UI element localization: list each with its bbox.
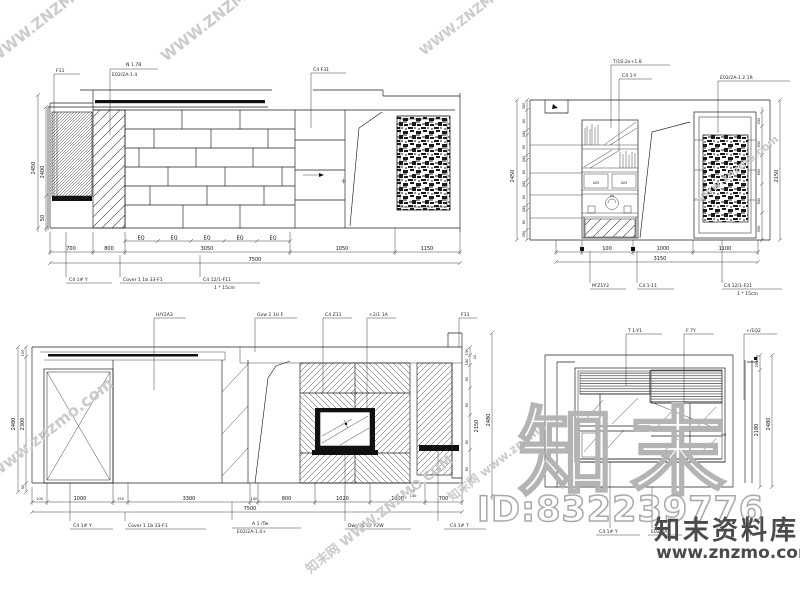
dim-label: 60 (465, 402, 469, 407)
callout-label: C4 1-11 (639, 283, 657, 289)
dim-label: 1000 (74, 496, 87, 502)
hook-marker (754, 357, 757, 360)
curtain-box-bar (48, 354, 198, 357)
callout-label: T/1S-2x+1.8 (612, 59, 642, 65)
dim-label: 3050 (201, 246, 214, 252)
dim-label: 60 (522, 144, 526, 149)
dim-label: 60 (522, 169, 526, 174)
dim-label: 340 (522, 155, 526, 163)
watermark-diagonal: WWW.ZNZMO.COM (157, 0, 294, 65)
dim-label: 140 (251, 497, 259, 501)
direction-arrow (303, 175, 346, 184)
staggered-brick-wall (125, 110, 295, 228)
dim-total-label: 2480 (486, 414, 492, 427)
drawing-bottom-left-elevation: 100 2300 50 2480 150 10 140 60 60 2150 6… (11, 312, 494, 535)
callout-label: T 1-Y1 (627, 328, 642, 334)
left-hatched-panel (52, 112, 92, 196)
dim-label: 60 (522, 118, 526, 123)
dim-label: 255 (755, 361, 759, 368)
mirror-slashes (222, 364, 248, 476)
decor-detail (608, 195, 616, 203)
dim-total-label: 2150 (774, 170, 780, 183)
dim-label: 550 (757, 197, 761, 205)
cell-dim: 425 (593, 181, 600, 185)
dim-label: 60 (522, 219, 526, 224)
dim-label: 60 (465, 376, 469, 381)
carved-art-panel (397, 116, 450, 210)
dim-label: 1020 (336, 496, 349, 502)
curtain-profile (350, 112, 382, 226)
dim-label: 700 (66, 246, 76, 252)
cad-canvas: EQ EQ EQ EQ EQ 700 800 3050 1050 1150 75… (0, 0, 800, 600)
watermark-diagonal: WWW.ZNZMO.COM (0, 0, 123, 67)
wall-shelf-lines (530, 145, 582, 218)
callout-label: Cover 1 1b 33-F1 (123, 277, 163, 283)
dim-label: 350 (522, 230, 526, 238)
callout-label: 1 * 15cm (737, 291, 759, 297)
dim-total-label: 3150 (654, 256, 667, 262)
callout-label: H/Y2A3 (156, 312, 173, 318)
dim-label: 3300 (183, 496, 196, 502)
dim-label: 1100 (719, 246, 732, 252)
dim-label: 2180 (754, 424, 760, 437)
section-marker (631, 247, 635, 251)
callout-label: F11 (461, 312, 470, 318)
watermark-diagonal: www.znzmo.com (0, 374, 117, 482)
dim-total-label: 7500 (249, 257, 262, 263)
panel-base-strip (419, 445, 459, 451)
watermark-brand-name: 知末资料库 (654, 516, 799, 546)
callout-label: C4 1# 7 (450, 523, 469, 529)
watermark-site-url: www.znzmo.com (656, 543, 800, 563)
section-marker (580, 247, 584, 251)
eq-label: EQ (269, 236, 276, 242)
callout-leaders-bottom (590, 240, 782, 289)
dim-label: 1000 (657, 246, 670, 252)
curtain-box-bar (95, 100, 265, 103)
dim-label: 60 (465, 466, 469, 471)
diagonal-panel (93, 110, 125, 228)
curtain-profile (640, 122, 690, 238)
ceiling-mark (552, 104, 558, 109)
dim-label: 2400 (40, 166, 46, 179)
right-step (452, 363, 462, 478)
left-panel-base (52, 196, 92, 201)
dim-label: 340 (522, 180, 526, 188)
dim-label: 150 (465, 348, 469, 356)
eq-label: EQ (236, 236, 243, 242)
callout-label: C4 12/1-F11 (203, 277, 231, 283)
callout-label: M'Z1Y2 (592, 283, 609, 289)
dim-label: 10 (473, 354, 477, 359)
eq-label: EQ (170, 236, 177, 242)
dim-total-label: 7500 (244, 506, 257, 512)
dim-label: 140 (465, 358, 469, 366)
dim-label: 340 (522, 130, 526, 138)
dim-label: 2300 (20, 418, 26, 431)
dim-label: 2150 (474, 420, 480, 433)
decor-object (606, 197, 619, 210)
callout-label: A 1 /Tw (252, 521, 269, 527)
arrow-head (319, 173, 324, 177)
callout-label: F 7Y (686, 328, 696, 334)
feature-wall-hatch (300, 453, 355, 483)
callout-label: E02/2A-1.4+ (237, 529, 266, 535)
callout-label: +2/1 1A (369, 312, 389, 318)
callout-label: Gvw 1 1U F. (257, 312, 284, 318)
dim-label: 100 (21, 349, 25, 357)
feature-wall-hatch (355, 453, 410, 483)
drawing-top-left-elevation: EQ EQ EQ EQ EQ 700 800 3050 1050 1150 75… (31, 62, 462, 291)
ceiling-step (545, 100, 568, 113)
cell-dim: 425 (621, 181, 628, 185)
callout-label: Cover 1 1b 33-F1 (128, 523, 168, 529)
desk-item (588, 206, 595, 213)
tv-base-band (312, 450, 378, 455)
panel-edges (113, 360, 248, 483)
books (585, 124, 635, 168)
base-cabinet (585, 219, 635, 237)
dim-label: 550 (757, 225, 761, 233)
feature-wall-hatch (355, 363, 410, 393)
callout-label: 1 * 15cm (214, 285, 236, 291)
drawing-top-right-elevation: 425 425 350 60 340 60 340 60 340 60 340 … (510, 59, 790, 297)
dim-label: 100 (36, 497, 44, 501)
dim-label: 550 (757, 168, 761, 176)
dim-label: 340 (522, 205, 526, 213)
dim-total-label: 2480 (766, 418, 772, 431)
dim-label: 2450 (31, 162, 37, 175)
dim-label: 350 (522, 102, 526, 110)
eq-label: EQ (137, 236, 144, 242)
callout-label: C4 1# Y (73, 523, 92, 529)
callout-leaders-bottom (66, 232, 260, 283)
callout-label: C4 Z11 (325, 312, 342, 318)
cad-drawing-sheet: EQ EQ EQ EQ EQ 700 800 3050 1050 1150 75… (0, 0, 800, 600)
dim-total-label: 2450 (510, 170, 516, 183)
dim-label: 800 (104, 246, 114, 252)
callout-label: E02/2A-1.2 1R (720, 75, 754, 81)
dim-line-left (36, 93, 48, 232)
callout-label: C4 1# Y (69, 277, 88, 283)
callout-label: C4 F31 (313, 67, 329, 73)
dim-label: 60 (465, 439, 469, 444)
dim-label: 100 (602, 246, 612, 252)
eq-label: EQ (203, 236, 210, 242)
watermark-layer: WWW.ZNZMO.COM WWW.ZNZMO.COM WWW.ZNZMO.CO… (0, 0, 800, 577)
dim-label: 60 (522, 194, 526, 199)
dim-label: 50 (21, 484, 25, 489)
dim-label: 1050 (336, 246, 349, 252)
dim-label: 250 (757, 117, 761, 125)
right-panel-column (295, 110, 345, 228)
callout-label: +/1Q2 (746, 328, 761, 334)
tv-logo (345, 423, 347, 425)
callout-label: C4 12/1-F21 (724, 283, 752, 289)
dim-total-label: 2480 (11, 418, 17, 431)
dim-label: 1150 (421, 246, 434, 252)
feature-wall-hatch (300, 363, 355, 393)
dim-label: 50 (40, 215, 46, 221)
tv-screen (320, 412, 370, 446)
curtain-profile (255, 361, 290, 483)
desk-item (624, 206, 631, 213)
dim-label: 800 (282, 496, 292, 502)
callout-label: C4 1-Y (622, 73, 637, 79)
blind-left (580, 373, 650, 394)
callout-label: E02/2A-1.4 (112, 72, 137, 78)
watermark-diagonal: WWW.ZNZMO.COM (417, 0, 536, 59)
callout-label: N 1.7B (126, 62, 141, 68)
dim-label: 150 (117, 497, 125, 501)
callout-label: F11 (56, 68, 65, 74)
